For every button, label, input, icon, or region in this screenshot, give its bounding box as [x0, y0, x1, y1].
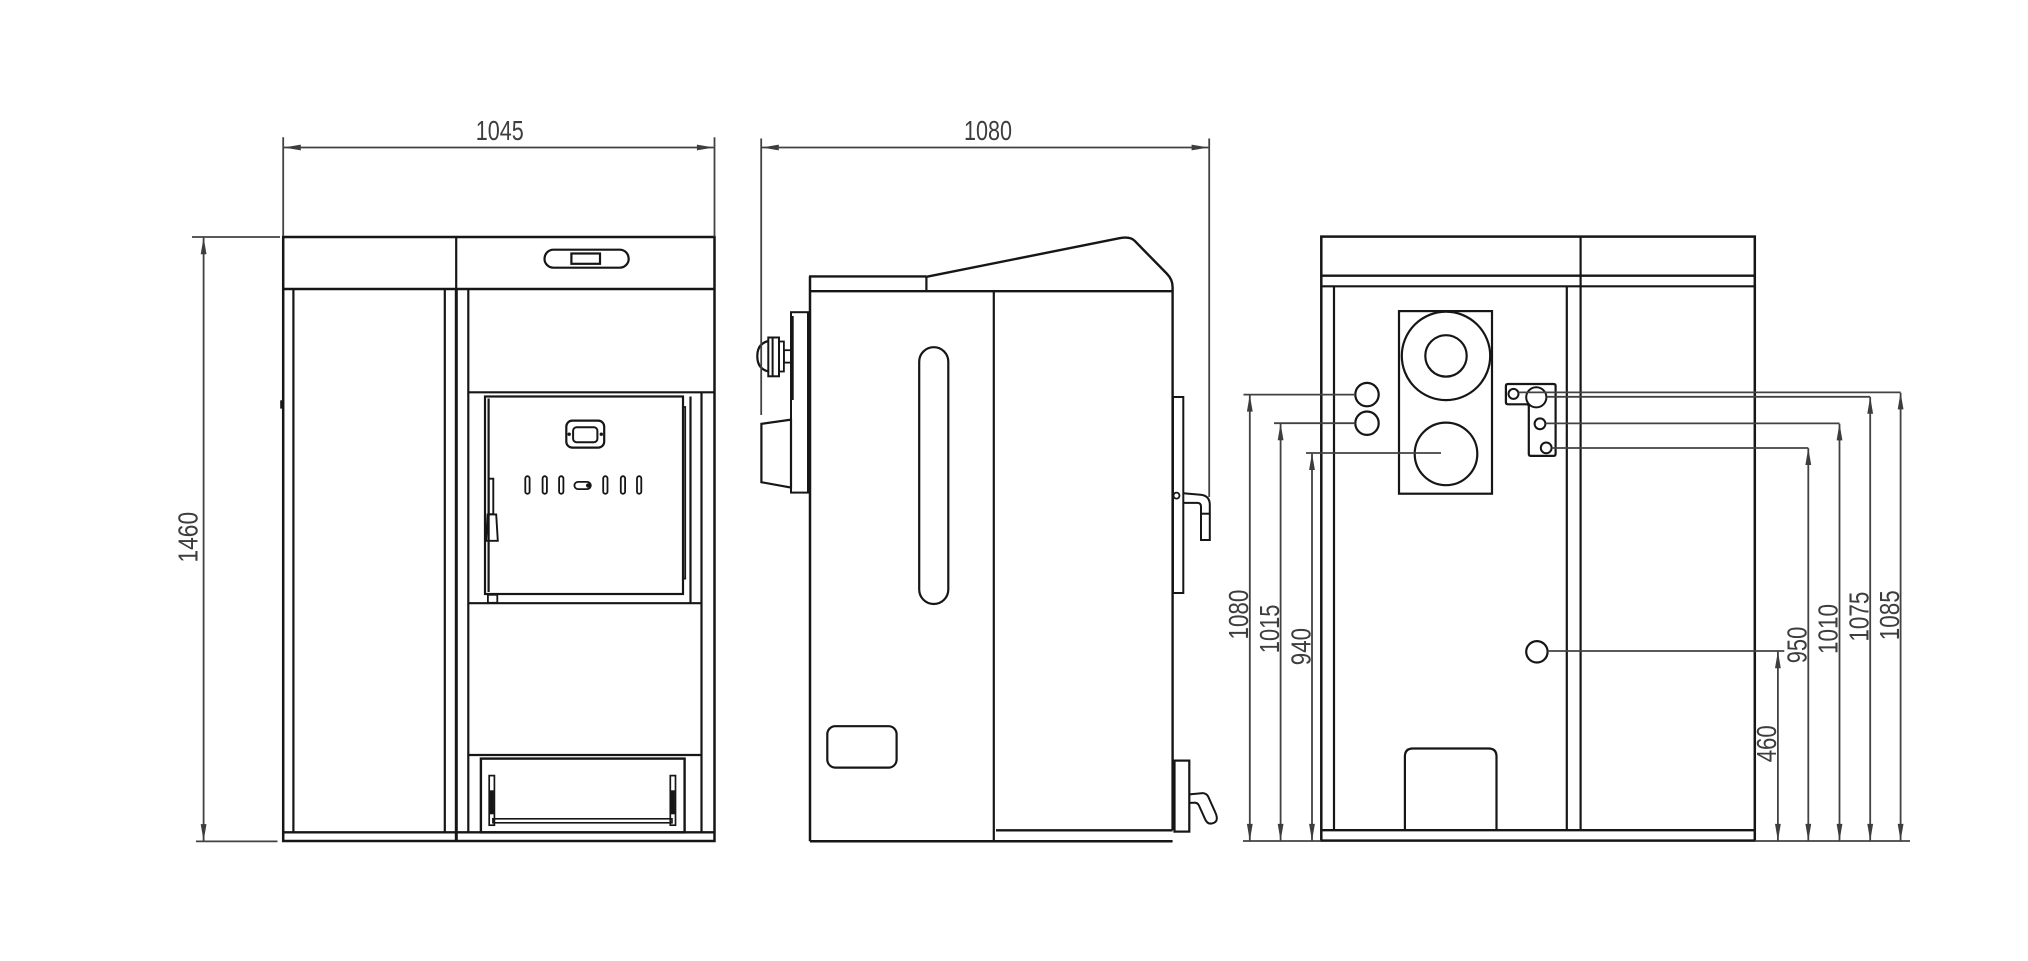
svg-text:1010: 1010	[1813, 604, 1844, 654]
svg-text:1045: 1045	[476, 115, 524, 146]
svg-text:940: 940	[1286, 628, 1317, 665]
svg-text:1080: 1080	[1223, 590, 1254, 640]
svg-text:1075: 1075	[1843, 592, 1874, 642]
svg-text:1015: 1015	[1254, 605, 1285, 654]
svg-text:460: 460	[1751, 725, 1782, 762]
svg-text:1085: 1085	[1874, 590, 1905, 640]
svg-text:1460: 1460	[173, 512, 204, 563]
svg-text:950: 950	[1781, 627, 1812, 664]
svg-text:1080: 1080	[964, 115, 1012, 146]
